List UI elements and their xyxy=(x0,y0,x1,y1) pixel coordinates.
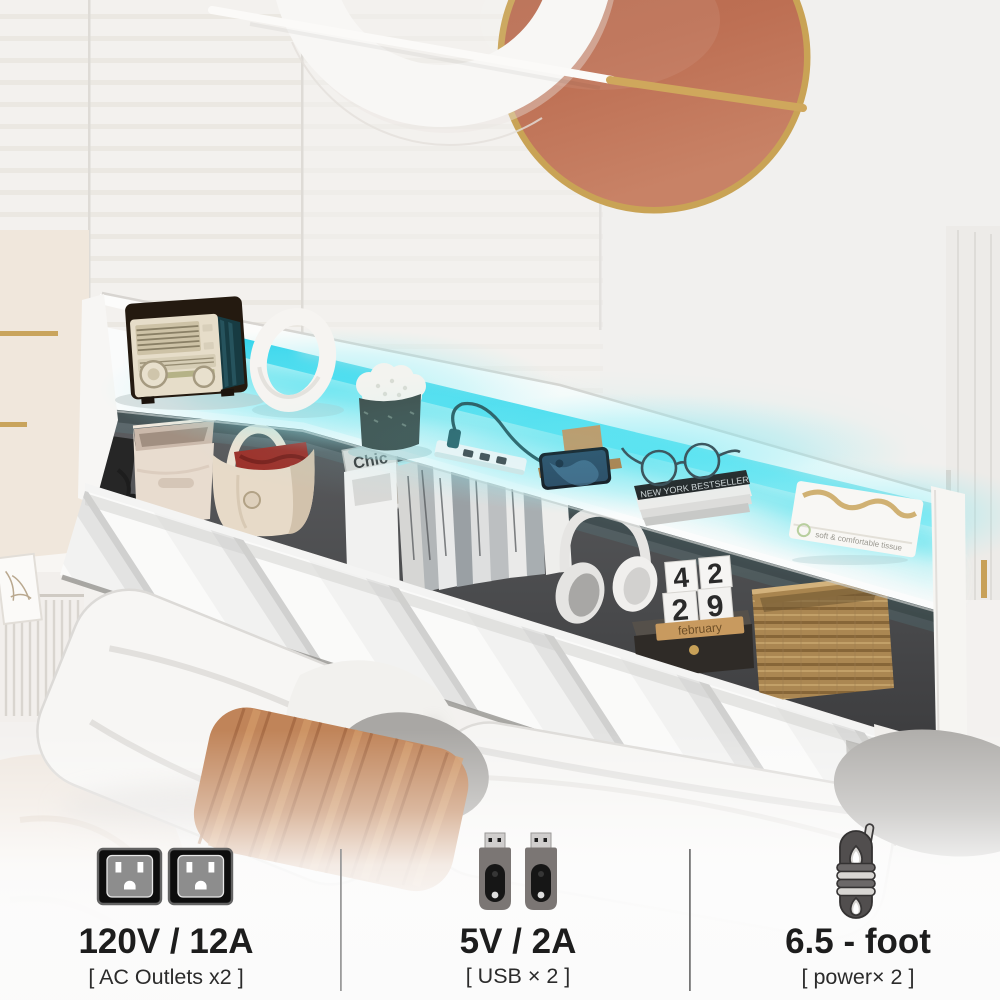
svg-text:[ AC Outlets x2 ]: [ AC Outlets x2 ] xyxy=(88,965,243,989)
svg-text:5V / 2A: 5V / 2A xyxy=(460,922,577,961)
svg-text:2: 2 xyxy=(706,557,724,589)
svg-text:4: 4 xyxy=(672,561,691,593)
svg-text:[ power× 2 ]: [ power× 2 ] xyxy=(802,965,915,989)
svg-text:6.5 - foot: 6.5 - foot xyxy=(785,922,931,961)
svg-text:120V / 12A: 120V / 12A xyxy=(78,922,253,961)
svg-text:[ USB × 2 ]: [ USB × 2 ] xyxy=(466,964,571,988)
